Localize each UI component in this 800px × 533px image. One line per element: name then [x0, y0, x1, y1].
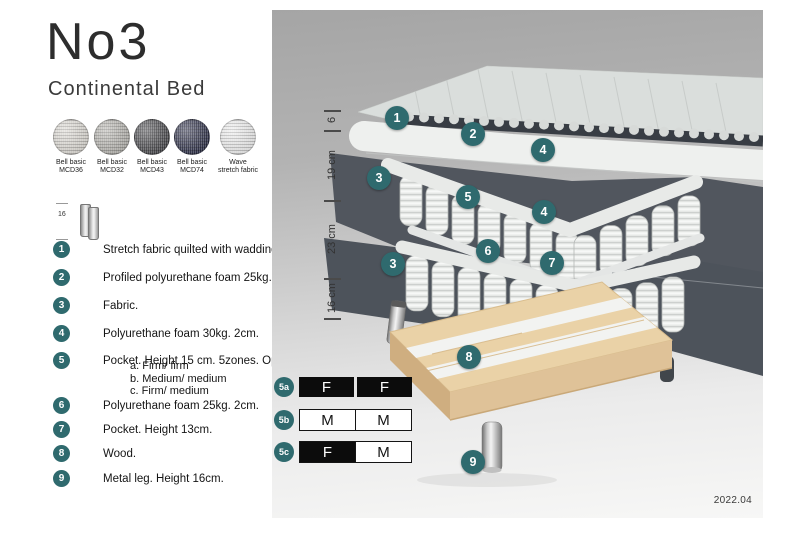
dimension-label-topper: 6: [322, 110, 342, 130]
metal-leg-thumb: [88, 207, 99, 240]
firmness-cell: M: [355, 410, 411, 430]
dimension-label-mattress: 19 cm: [322, 130, 342, 200]
spec-item-6: 6 Polyurethane foam 25kg. 2cm.: [53, 397, 293, 414]
callout-3-upper: 3: [367, 166, 391, 190]
spec-number-badge: 5: [53, 352, 70, 369]
callout-9: 9: [461, 450, 485, 474]
spec-text: Polyurethane foam 30kg. 2cm.: [103, 328, 259, 340]
spec-number-badge: 9: [53, 470, 70, 487]
fabric-swatch: Wavestretch fabric: [206, 119, 270, 175]
firmness-cell: F: [357, 377, 412, 397]
callout-8: 8: [457, 345, 481, 369]
spec-number-badge: 7: [53, 421, 70, 438]
ruler-tick: [324, 318, 341, 320]
spec-item-4: 4 Polyurethane foam 30kg. 2cm.: [53, 325, 293, 342]
spec-option: a. Firm/ firm: [130, 360, 227, 373]
spec-item-2: 2 Profiled polyurethane foam 25kg. 4cm.: [53, 269, 293, 286]
spec-item-7: 7 Pocket. Height 13cm.: [53, 421, 293, 438]
spec-item-5-options: a. Firm/ firm b. Medium/ medium c. Firm/…: [130, 360, 227, 398]
leg-height-thumbnail: 16: [56, 197, 116, 245]
firmness-badge: 5a: [274, 377, 294, 397]
callout-4-upper: 4: [531, 138, 555, 162]
callout-2: 2: [461, 122, 485, 146]
swatch-code: stretch fabric: [206, 167, 270, 175]
spec-item-9: 9 Metal leg. Height 16cm.: [53, 470, 293, 487]
callout-3-lower: 3: [381, 252, 405, 276]
dimension-tick: [56, 203, 68, 204]
callout-5: 5: [456, 185, 480, 209]
leg-height-value: 16: [58, 211, 66, 218]
product-render-panel: 6 19 cm 23 cm 16 cm 1 2 4 3 5 4 6 7 3 8 …: [272, 10, 763, 518]
fabric-swatch-image: [220, 119, 256, 155]
spec-number-badge: 3: [53, 297, 70, 314]
catalog-date: 2022.04: [714, 495, 752, 506]
spec-number-badge: 4: [53, 325, 70, 342]
firmness-cell: F: [300, 442, 355, 462]
spec-number-badge: 1: [53, 241, 70, 258]
spec-text: Profiled polyurethane foam 25kg. 4cm.: [103, 272, 300, 284]
spec-text: Metal leg. Height 16cm.: [103, 473, 224, 485]
page-subtitle: Continental Bed: [48, 78, 205, 101]
spec-text: Wood.: [103, 448, 136, 460]
dimension-label-base: 23 cm: [322, 200, 342, 278]
spec-option: b. Medium/ medium: [130, 373, 227, 386]
spec-number-badge: 2: [53, 269, 70, 286]
callout-4-lower: 4: [532, 200, 556, 224]
spec-item-1: 1 Stretch fabric quilted with wadding.: [53, 241, 293, 258]
fabric-swatch-image: [174, 119, 210, 155]
spec-text: Stretch fabric quilted with wadding.: [103, 244, 281, 256]
dimension-label-leg: 16 cm: [322, 278, 342, 318]
spec-item-3: 3 Fabric.: [53, 297, 293, 314]
spec-text: Polyurethane foam 25kg. 2cm.: [103, 400, 259, 412]
callout-6: 6: [476, 239, 500, 263]
dimension-tick: [56, 239, 68, 240]
firmness-cell: F: [299, 377, 354, 397]
page-title: No3: [46, 12, 150, 72]
firmness-option-5b: 5b M M: [274, 409, 412, 431]
spec-text: Pocket. Height 13cm.: [103, 424, 212, 436]
firmness-cell: M: [300, 410, 355, 430]
spec-option: c. Firm/ medium: [130, 385, 227, 398]
callout-7: 7: [540, 251, 564, 275]
swatch-label: Wave: [206, 159, 270, 167]
spec-number-badge: 8: [53, 445, 70, 462]
firmness-option-5a: 5a F F: [274, 377, 412, 397]
firmness-badge: 5b: [274, 410, 294, 430]
firmness-cell: M: [355, 442, 411, 462]
callout-1: 1: [385, 106, 409, 130]
spec-item-8: 8 Wood.: [53, 445, 293, 462]
spec-text: Fabric.: [103, 300, 138, 312]
spec-number-badge: 6: [53, 397, 70, 414]
firmness-option-5c: 5c F M: [274, 441, 412, 463]
firmness-badge: 5c: [274, 442, 294, 462]
